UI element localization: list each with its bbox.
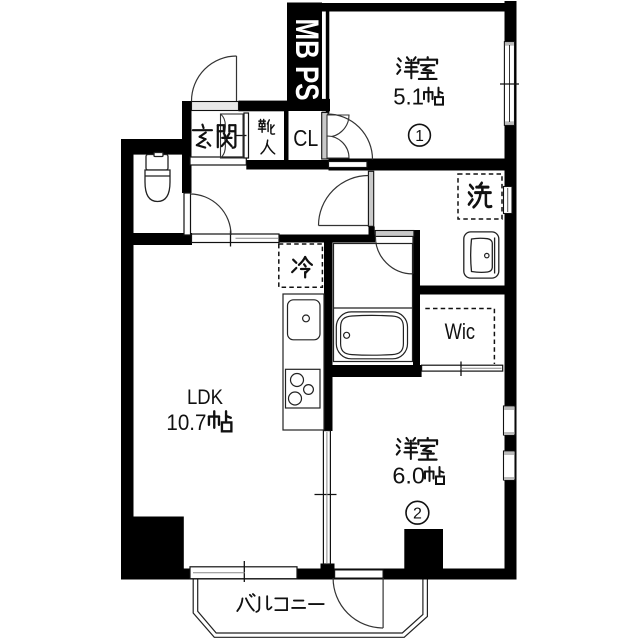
svg-text:5.1: 5.1 xyxy=(393,83,424,109)
svg-text:6.0: 6.0 xyxy=(392,462,425,488)
svg-text:LDK: LDK xyxy=(187,385,224,409)
svg-text:CL: CL xyxy=(293,125,318,151)
svg-text:MB PS: MB PS xyxy=(289,19,325,101)
svg-text:2: 2 xyxy=(413,506,422,523)
svg-text:Wic: Wic xyxy=(445,319,476,344)
svg-text:10.7: 10.7 xyxy=(166,410,206,435)
svg-text:1: 1 xyxy=(415,128,424,145)
